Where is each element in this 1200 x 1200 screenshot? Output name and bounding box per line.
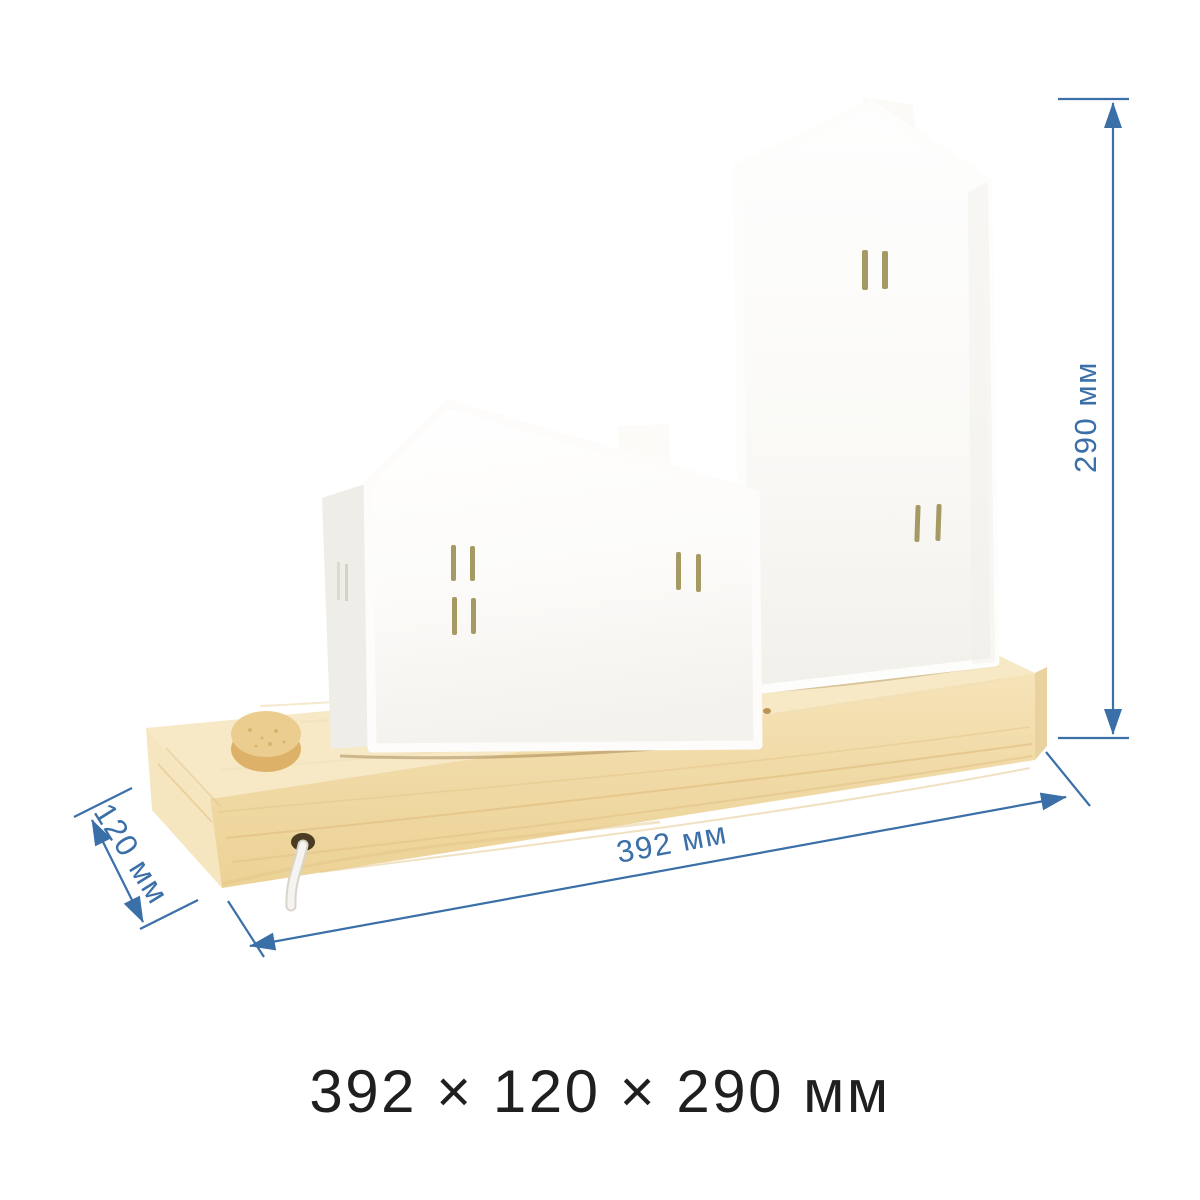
wood-knot (763, 708, 771, 714)
width-right-tick (1046, 752, 1090, 806)
tall-house (737, 101, 995, 691)
tall-house-front (737, 104, 995, 691)
product-render (0, 0, 1200, 1200)
width-left-tick (228, 901, 264, 957)
product-dimension-image: 290 мм 392 мм 120 мм 392 × 120 × 290 мм (0, 0, 1200, 1200)
small-house (322, 404, 758, 749)
base-right-end-face (1035, 667, 1047, 760)
dimensions-summary: 392 × 120 × 290 мм (309, 1057, 890, 1126)
height-dimension-label: 290 мм (1068, 361, 1104, 473)
switch-knob (231, 711, 301, 772)
